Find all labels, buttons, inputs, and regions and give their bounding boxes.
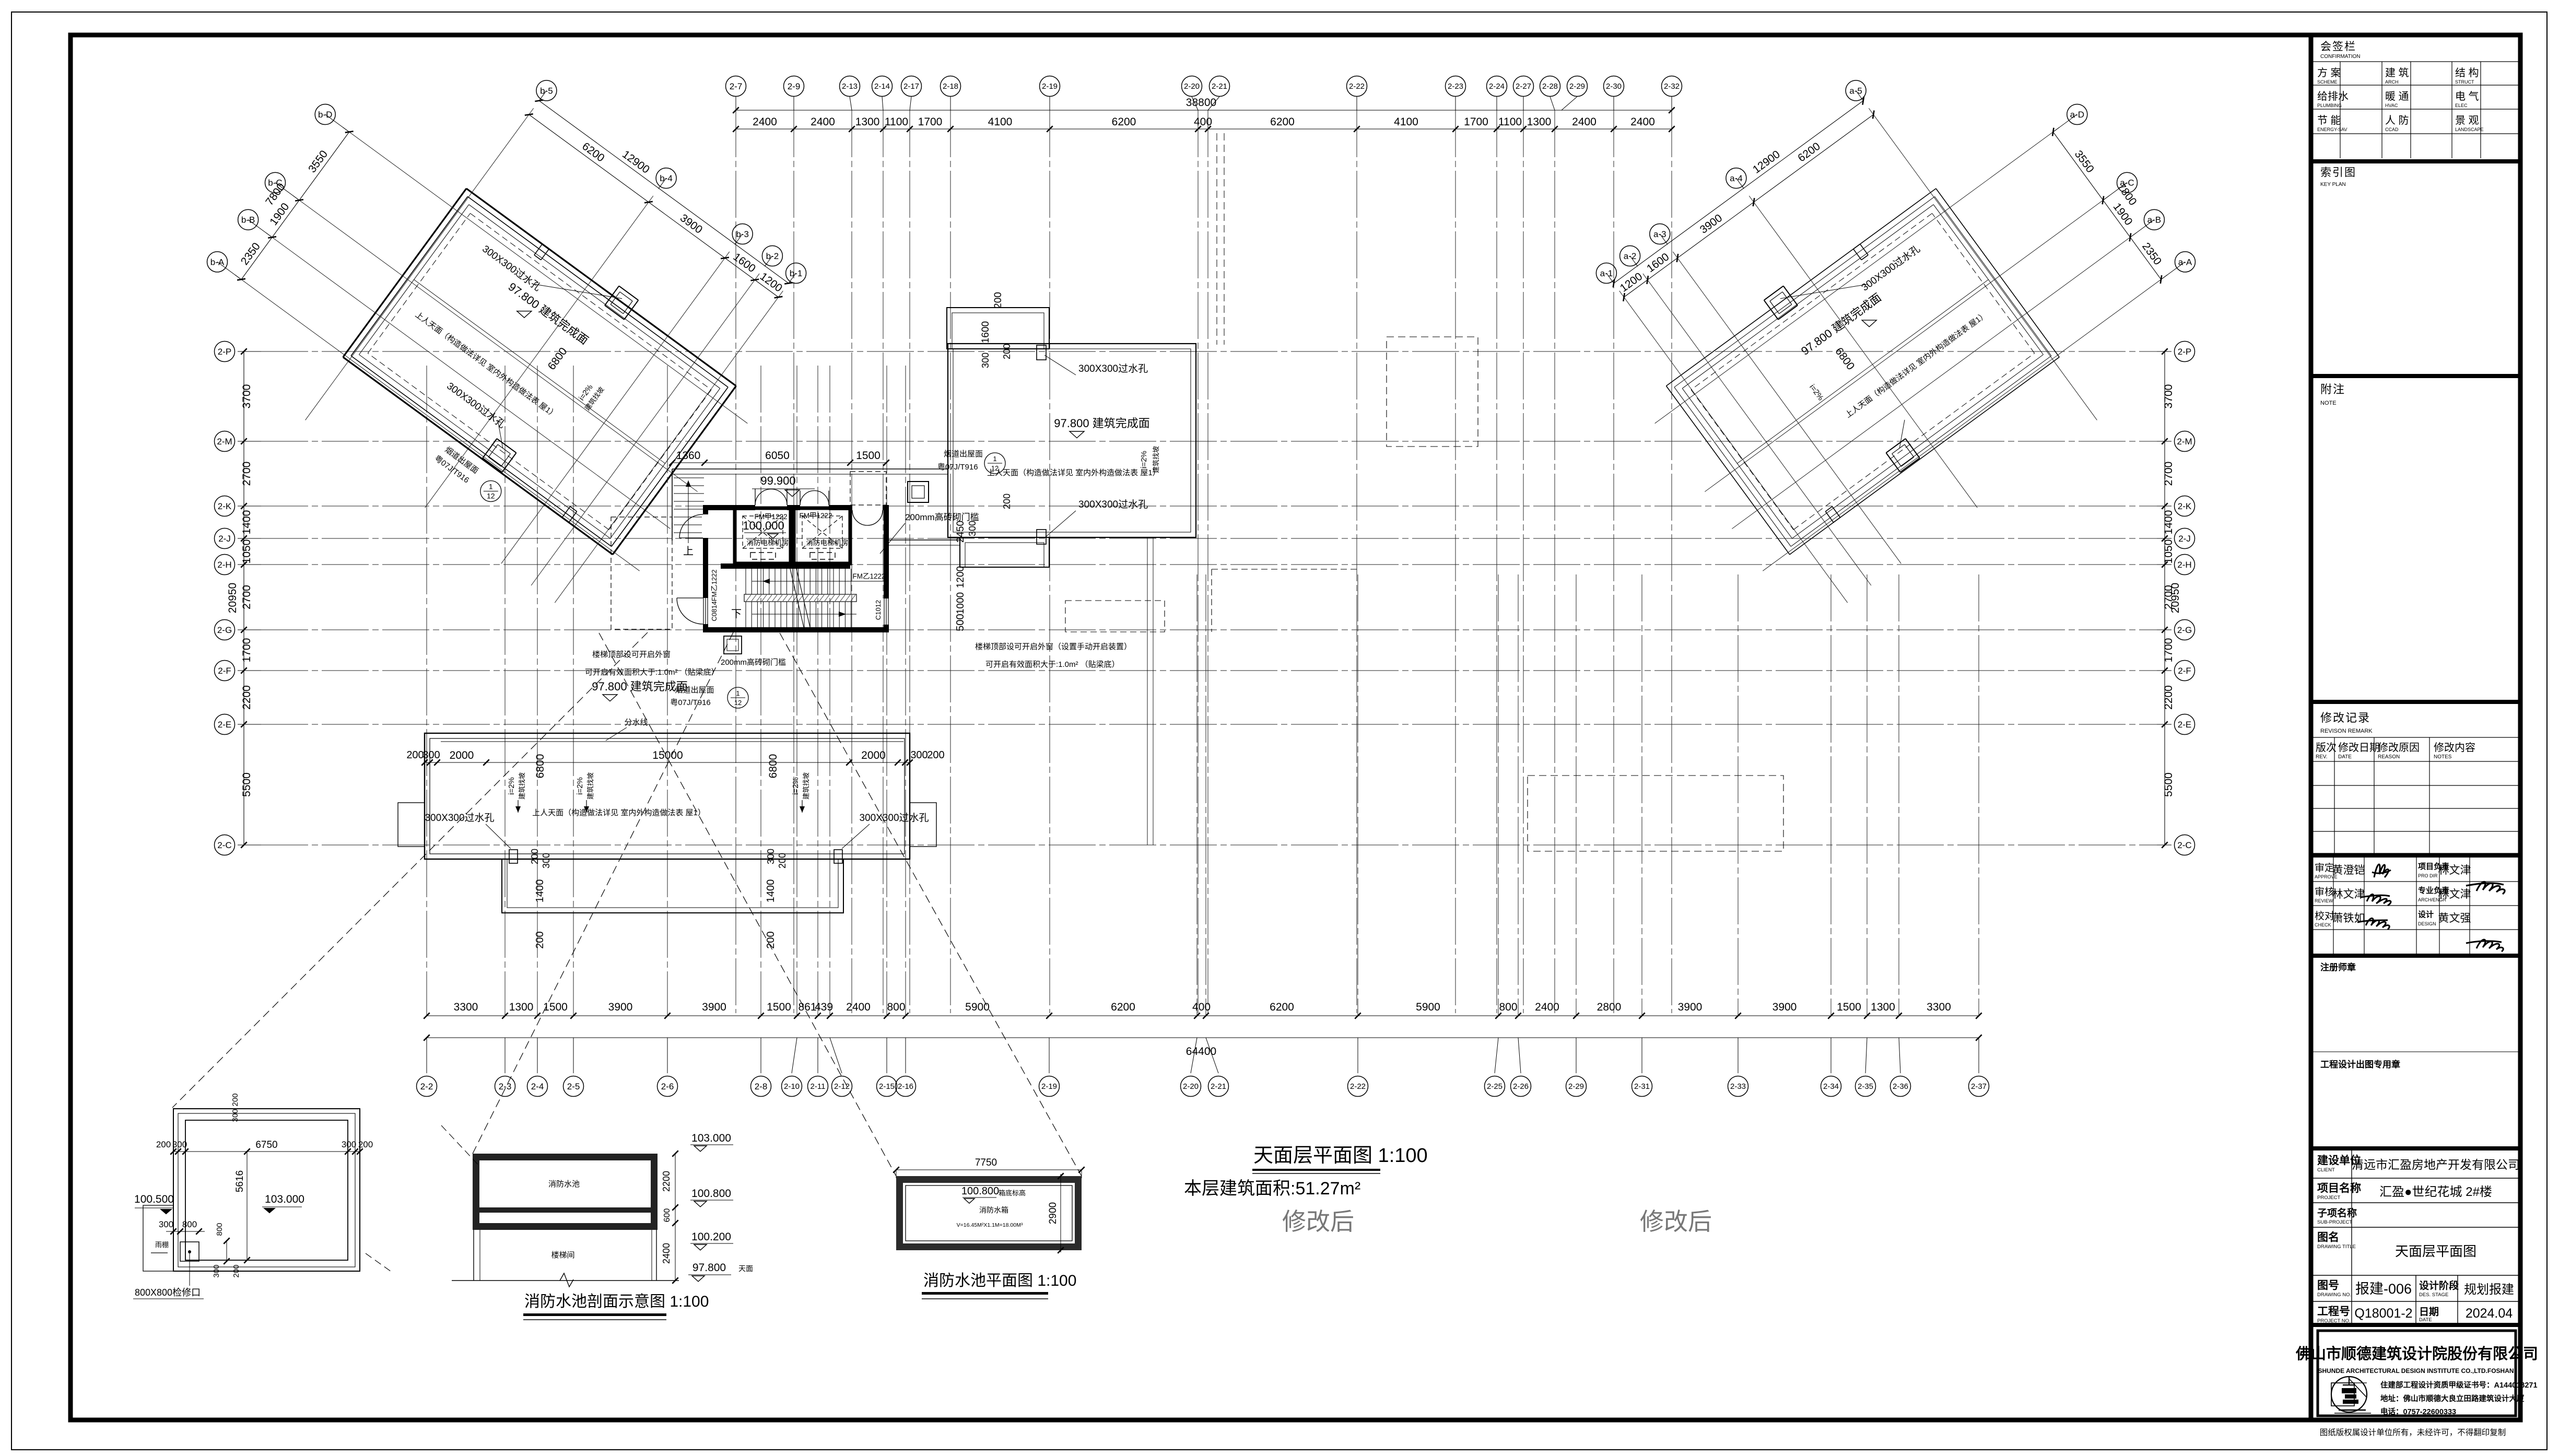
svg-text:2-M: 2-M xyxy=(2177,437,2192,447)
svg-text:2-31: 2-31 xyxy=(1634,1082,1650,1091)
svg-text:2-23: 2-23 xyxy=(1448,82,1463,91)
svg-text:2-17: 2-17 xyxy=(903,82,919,91)
svg-text:1400: 1400 xyxy=(241,510,253,535)
svg-text:索引图: 索引图 xyxy=(2320,167,2356,179)
svg-text:400: 400 xyxy=(1194,116,1212,128)
svg-text:粤07J/T916: 粤07J/T916 xyxy=(670,698,711,707)
svg-text:3700: 3700 xyxy=(2163,384,2175,409)
svg-text:103.000: 103.000 xyxy=(691,1132,731,1144)
svg-text:天面层平面图 1:100: 天面层平面图 1:100 xyxy=(1253,1145,1428,1167)
svg-text:C1012: C1012 xyxy=(874,600,882,620)
svg-text:200: 200 xyxy=(358,1140,373,1149)
svg-text:修改后: 修改后 xyxy=(1640,1208,1712,1235)
svg-text:6800: 6800 xyxy=(534,754,546,779)
svg-text:2-P: 2-P xyxy=(2178,347,2191,357)
svg-text:KEY PLAN: KEY PLAN xyxy=(2320,182,2346,187)
svg-text:2-11: 2-11 xyxy=(811,1082,826,1091)
svg-text:NOTES: NOTES xyxy=(2434,754,2452,760)
svg-text:电 气: 电 气 xyxy=(2455,90,2479,102)
svg-text:800: 800 xyxy=(1499,1001,1517,1013)
svg-text:2-4: 2-4 xyxy=(531,1082,544,1091)
svg-text:结 构: 结 构 xyxy=(2455,67,2479,79)
svg-text:CCAD: CCAD xyxy=(2385,127,2399,132)
svg-text:PROJECT: PROJECT xyxy=(2317,1195,2341,1201)
svg-text:HVAC: HVAC xyxy=(2385,103,2398,108)
svg-text:烟道出屋面: 烟道出屋面 xyxy=(675,686,714,695)
svg-text:ENERGY-SAV: ENERGY-SAV xyxy=(2317,127,2347,132)
svg-text:2200: 2200 xyxy=(241,685,253,710)
svg-text:1300: 1300 xyxy=(509,1001,534,1013)
svg-text:CLIENT: CLIENT xyxy=(2317,1167,2335,1173)
svg-text:可开启有效面积大于:1.0m² （贴梁底）: 可开启有效面积大于:1.0m² （贴梁底） xyxy=(985,660,1120,669)
svg-text:2-15: 2-15 xyxy=(879,1082,895,1091)
svg-text:SUB-PROJECT: SUB-PROJECT xyxy=(2317,1219,2352,1225)
svg-text:3900: 3900 xyxy=(608,1001,633,1013)
svg-text:地址：佛山市顺德大良立田路建筑设计大厦: 地址：佛山市顺德大良立田路建筑设计大厦 xyxy=(2380,1394,2525,1403)
svg-text:2-13: 2-13 xyxy=(842,82,858,91)
svg-text:300: 300 xyxy=(342,1140,356,1149)
svg-text:2-C: 2-C xyxy=(217,840,231,850)
svg-text:4100: 4100 xyxy=(1394,116,1418,128)
svg-text:设计: 设计 xyxy=(2418,910,2434,919)
svg-text:6200: 6200 xyxy=(1111,1001,1135,1013)
svg-text:6200: 6200 xyxy=(1270,116,1295,128)
svg-text:NOTE: NOTE xyxy=(2320,400,2337,406)
svg-text:300: 300 xyxy=(231,1109,240,1122)
svg-text:300: 300 xyxy=(172,1140,187,1149)
svg-text:2-2: 2-2 xyxy=(420,1082,433,1091)
svg-text:2-37: 2-37 xyxy=(1971,1082,1987,1091)
svg-text:300: 300 xyxy=(422,749,440,761)
svg-text:楼梯间: 楼梯间 xyxy=(551,1251,574,1260)
svg-text:2-E: 2-E xyxy=(218,720,231,730)
svg-text:DATE: DATE xyxy=(2419,1317,2432,1323)
svg-text:消防电梯机房: 消防电梯机房 xyxy=(806,539,849,547)
svg-text:2-16: 2-16 xyxy=(898,1082,913,1091)
svg-text:修改原因: 修改原因 xyxy=(2378,742,2420,754)
svg-text:方 案: 方 案 xyxy=(2317,67,2341,79)
svg-text:设计阶段: 设计阶段 xyxy=(2419,1279,2459,1291)
svg-text:2-35: 2-35 xyxy=(1858,1082,1873,1091)
svg-text:2900: 2900 xyxy=(1048,1202,1059,1224)
svg-text:2-21: 2-21 xyxy=(1211,1082,1226,1091)
svg-text:800X800检修口: 800X800检修口 xyxy=(135,1287,201,1298)
svg-text:1700: 1700 xyxy=(241,638,253,663)
svg-text:修改内容: 修改内容 xyxy=(2434,742,2475,754)
svg-text:2400: 2400 xyxy=(1572,116,1597,128)
svg-text:V=16.45M²X1.1M=18.00M³: V=16.45M²X1.1M=18.00M³ xyxy=(957,1222,1023,1228)
svg-text:林文津: 林文津 xyxy=(2438,888,2471,900)
svg-text:5900: 5900 xyxy=(1416,1001,1440,1013)
svg-text:2200: 2200 xyxy=(661,1171,672,1192)
svg-text:1300: 1300 xyxy=(1871,1001,1895,1013)
svg-text:2024.04: 2024.04 xyxy=(2466,1306,2513,1321)
svg-text:300: 300 xyxy=(541,853,551,868)
svg-text:2000: 2000 xyxy=(861,749,886,761)
svg-text:1700: 1700 xyxy=(1464,116,1488,128)
svg-text:天面: 天面 xyxy=(738,1264,753,1273)
svg-text:2-M: 2-M xyxy=(217,437,232,447)
svg-text:439: 439 xyxy=(815,1001,833,1013)
svg-text:12: 12 xyxy=(991,464,999,472)
svg-text:200mm高砖砌门槛: 200mm高砖砌门槛 xyxy=(905,512,979,522)
svg-text:5616: 5616 xyxy=(234,1170,245,1192)
svg-text:REASON: REASON xyxy=(2378,754,2400,760)
svg-text:1200: 1200 xyxy=(955,566,966,588)
svg-text:i=2%: i=2% xyxy=(791,777,800,795)
svg-text:2-H: 2-H xyxy=(2177,560,2191,570)
svg-text:2-C: 2-C xyxy=(2177,840,2191,850)
svg-text:2000: 2000 xyxy=(450,749,474,761)
svg-text:1700: 1700 xyxy=(2163,638,2175,663)
svg-text:2-K: 2-K xyxy=(218,501,232,511)
svg-text:汇盈●世纪花城 2#楼: 汇盈●世纪花城 2#楼 xyxy=(2379,1185,2492,1199)
svg-text:1700: 1700 xyxy=(918,116,943,128)
svg-text:天面层平面图: 天面层平面图 xyxy=(2395,1243,2476,1259)
svg-text:5500: 5500 xyxy=(2163,772,2175,797)
svg-text:消防水箱: 消防水箱 xyxy=(979,1206,1008,1214)
svg-text:200: 200 xyxy=(406,749,424,761)
svg-text:报建-006: 报建-006 xyxy=(2355,1281,2412,1297)
svg-text:建筑找坡: 建筑找坡 xyxy=(518,772,526,800)
svg-text:97.800 建筑完成面: 97.800 建筑完成面 xyxy=(592,680,687,693)
svg-text:粤07J/T916: 粤07J/T916 xyxy=(937,462,978,472)
svg-text:200: 200 xyxy=(765,931,777,948)
svg-text:景 观: 景 观 xyxy=(2455,115,2479,126)
svg-text:会签栏: 会签栏 xyxy=(2320,41,2356,53)
svg-text:2-7: 2-7 xyxy=(730,81,743,91)
svg-text:暖 通: 暖 通 xyxy=(2385,90,2409,102)
svg-text:2-19: 2-19 xyxy=(1041,1082,1057,1091)
svg-text:注册师章: 注册师章 xyxy=(2320,962,2356,972)
svg-text:i=2%: i=2% xyxy=(507,777,516,795)
svg-text:300: 300 xyxy=(910,749,928,761)
svg-text:DRAWING NO.: DRAWING NO. xyxy=(2317,1292,2351,1298)
svg-text:2-P: 2-P xyxy=(218,347,231,357)
svg-text:2-34: 2-34 xyxy=(1823,1082,1839,1091)
svg-text:300X300过水孔: 300X300过水孔 xyxy=(859,812,929,824)
svg-text:2-20: 2-20 xyxy=(1183,1082,1199,1091)
svg-text:佛山市顺德建筑设计院股份有限公司: 佛山市顺德建筑设计院股份有限公司 xyxy=(2295,1345,2538,1363)
svg-text:电话：0757-22600333: 电话：0757-22600333 xyxy=(2380,1407,2456,1416)
svg-text:2-H: 2-H xyxy=(217,560,231,570)
svg-text:1500: 1500 xyxy=(1837,1001,1861,1013)
svg-text:给排水: 给排水 xyxy=(2317,90,2349,102)
svg-text:6800: 6800 xyxy=(767,754,779,779)
svg-text:消防电梯机房: 消防电梯机房 xyxy=(747,539,789,547)
svg-text:103.000: 103.000 xyxy=(265,1193,304,1205)
svg-text:2-27: 2-27 xyxy=(1516,82,1531,91)
svg-text:3300: 3300 xyxy=(1927,1001,1951,1013)
svg-text:15000: 15000 xyxy=(652,749,683,761)
svg-text:2-E: 2-E xyxy=(2178,720,2191,730)
svg-text:建筑找坡: 建筑找坡 xyxy=(802,772,810,800)
svg-text:2-25: 2-25 xyxy=(1487,1082,1502,1091)
svg-text:12: 12 xyxy=(734,699,742,707)
svg-text:2-19: 2-19 xyxy=(1042,82,1058,91)
svg-text:2-21: 2-21 xyxy=(1212,82,1227,91)
svg-text:6750: 6750 xyxy=(255,1140,277,1150)
svg-text:Q18001-2: Q18001-2 xyxy=(2354,1306,2412,1321)
svg-text:2-J: 2-J xyxy=(218,534,231,544)
svg-text:20950: 20950 xyxy=(2169,583,2181,613)
svg-text:1000: 1000 xyxy=(955,592,966,614)
svg-text:300: 300 xyxy=(980,353,991,368)
svg-text:2400: 2400 xyxy=(811,116,835,128)
svg-text:LANDSCAPE: LANDSCAPE xyxy=(2455,127,2484,132)
svg-text:图纸版权属设计单位所有，未经许可，不得翻印复制: 图纸版权属设计单位所有，未经许可，不得翻印复制 xyxy=(2320,1428,2506,1437)
svg-text:2-28: 2-28 xyxy=(1542,82,1558,91)
svg-text:3900: 3900 xyxy=(1772,1001,1797,1013)
svg-text:2450: 2450 xyxy=(955,521,966,543)
svg-text:200: 200 xyxy=(1002,344,1012,359)
svg-text:2-9: 2-9 xyxy=(788,81,801,91)
svg-text:100.200: 100.200 xyxy=(691,1231,731,1243)
svg-text:CHECK: CHECK xyxy=(2315,922,2331,927)
svg-text:i=2%: i=2% xyxy=(1140,451,1148,468)
svg-text:1500: 1500 xyxy=(767,1001,791,1013)
svg-text:1050: 1050 xyxy=(2163,539,2175,564)
svg-text:子项名称: 子项名称 xyxy=(2317,1207,2357,1219)
svg-text:1: 1 xyxy=(489,483,493,491)
svg-text:2-22: 2-22 xyxy=(1350,1082,1366,1091)
svg-text:箱底标高: 箱底标高 xyxy=(999,1189,1026,1197)
svg-text:萧铁如: 萧铁如 xyxy=(2332,912,2365,924)
svg-text:97.800 建筑完成面: 97.800 建筑完成面 xyxy=(1054,417,1149,430)
svg-text:REVIEW: REVIEW xyxy=(2315,898,2333,903)
svg-text:2-29: 2-29 xyxy=(1569,82,1585,91)
svg-text:500: 500 xyxy=(955,614,966,631)
svg-text:200: 200 xyxy=(993,292,1004,309)
svg-text:100.800: 100.800 xyxy=(691,1188,731,1200)
svg-text:600: 600 xyxy=(663,1208,672,1223)
svg-text:ARCH: ARCH xyxy=(2385,79,2399,85)
svg-text:i=2%: i=2% xyxy=(576,777,584,795)
svg-text:校对: 校对 xyxy=(2315,910,2334,922)
svg-text:PRO DIR: PRO DIR xyxy=(2418,873,2438,878)
svg-text:100.500: 100.500 xyxy=(134,1193,174,1205)
svg-text:1: 1 xyxy=(736,689,739,697)
svg-text:REVISON REMARK: REVISON REMARK xyxy=(2320,728,2373,734)
svg-text:2-14: 2-14 xyxy=(874,82,890,91)
svg-text:2-F: 2-F xyxy=(2178,666,2191,676)
svg-text:1360: 1360 xyxy=(676,450,701,462)
svg-text:图号: 图号 xyxy=(2317,1279,2339,1291)
svg-text:修改记录: 修改记录 xyxy=(2320,711,2370,724)
svg-text:2-K: 2-K xyxy=(2178,501,2192,511)
svg-text:200mm高砖砌门槛: 200mm高砖砌门槛 xyxy=(721,658,786,667)
svg-text:图名: 图名 xyxy=(2317,1231,2339,1243)
svg-text:上人天面（构造做法详见 室内外构造做法表 屋1）: 上人天面（构造做法详见 室内外构造做法表 屋1） xyxy=(987,468,1160,477)
svg-text:300X300过水孔: 300X300过水孔 xyxy=(1078,363,1148,374)
svg-text:ELEC: ELEC xyxy=(2455,103,2468,108)
svg-text:FM甲1222: FM甲1222 xyxy=(799,512,832,520)
svg-text:200: 200 xyxy=(231,1093,240,1106)
svg-text:日期: 日期 xyxy=(2419,1306,2439,1318)
svg-text:上: 上 xyxy=(683,545,694,557)
svg-text:300: 300 xyxy=(212,1264,221,1277)
svg-text:2400: 2400 xyxy=(1630,116,1655,128)
svg-text:2-G: 2-G xyxy=(217,625,232,635)
svg-text:300X300过水孔: 300X300过水孔 xyxy=(1078,499,1148,510)
svg-text:建筑找坡: 建筑找坡 xyxy=(586,772,594,800)
svg-text:FM乙1222: FM乙1222 xyxy=(852,572,885,580)
svg-text:2-10: 2-10 xyxy=(784,1082,800,1091)
svg-text:2700: 2700 xyxy=(241,585,253,609)
svg-text:38800: 38800 xyxy=(1186,97,1216,109)
svg-text:5900: 5900 xyxy=(965,1001,990,1013)
svg-text:修改后: 修改后 xyxy=(1282,1208,1354,1235)
svg-text:住建部工程设计资质甲级证书号：A144018271: 住建部工程设计资质甲级证书号：A144018271 xyxy=(2380,1380,2538,1390)
svg-text:2200: 2200 xyxy=(2163,685,2175,710)
svg-text:4100: 4100 xyxy=(988,116,1013,128)
svg-text:DES. STAGE: DES. STAGE xyxy=(2419,1292,2448,1298)
svg-text:2-3: 2-3 xyxy=(499,1082,512,1091)
svg-text:2-32: 2-32 xyxy=(1664,82,1680,91)
svg-text:可开启有效面积大于:1.0m² （贴梁底）: 可开启有效面积大于:1.0m² （贴梁底） xyxy=(585,668,719,677)
svg-text:2-F: 2-F xyxy=(218,666,231,676)
svg-text:规划报建: 规划报建 xyxy=(2464,1283,2514,1297)
svg-text:300: 300 xyxy=(766,849,776,864)
svg-text:300: 300 xyxy=(967,521,978,536)
svg-text:工程号: 工程号 xyxy=(2317,1306,2350,1318)
svg-text:分水线: 分水线 xyxy=(624,718,648,727)
svg-text:300: 300 xyxy=(159,1219,173,1229)
svg-text:300X300过水孔: 300X300过水孔 xyxy=(425,812,494,824)
svg-text:1: 1 xyxy=(993,455,996,463)
svg-text:1400: 1400 xyxy=(534,879,546,903)
svg-text:800: 800 xyxy=(215,1223,224,1236)
svg-text:2800: 2800 xyxy=(1597,1001,1622,1013)
svg-text:修改日期: 修改日期 xyxy=(2338,742,2380,754)
svg-text:消防水池: 消防水池 xyxy=(548,1180,580,1189)
svg-text:100.800: 100.800 xyxy=(961,1185,999,1197)
svg-text:800: 800 xyxy=(182,1219,197,1229)
svg-text:黄文强: 黄文强 xyxy=(2438,912,2471,924)
svg-text:6200: 6200 xyxy=(1112,116,1136,128)
svg-text:本层建筑面积:51.27m²: 本层建筑面积:51.27m² xyxy=(1184,1179,1360,1199)
svg-text:2-6: 2-6 xyxy=(661,1082,674,1091)
svg-text:建筑找坡: 建筑找坡 xyxy=(1152,446,1160,473)
svg-text:人 防: 人 防 xyxy=(2385,114,2409,126)
svg-text:CONFIRMATION: CONFIRMATION xyxy=(2320,54,2360,60)
svg-text:上人天面（构造做法详见 室内外构造做法表 屋1）: 上人天面（构造做法详见 室内外构造做法表 屋1） xyxy=(532,808,706,817)
svg-text:1100: 1100 xyxy=(885,116,908,128)
svg-text:6200: 6200 xyxy=(1270,1001,1294,1013)
svg-text:1100: 1100 xyxy=(1498,116,1522,128)
svg-text:PLUMBING: PLUMBING xyxy=(2317,103,2342,108)
svg-text:200: 200 xyxy=(777,853,788,868)
svg-text:附注: 附注 xyxy=(2320,383,2345,396)
svg-text:2-30: 2-30 xyxy=(1606,82,1622,91)
svg-text:100.000: 100.000 xyxy=(743,519,784,532)
svg-text:6050: 6050 xyxy=(765,450,790,462)
svg-text:12: 12 xyxy=(487,492,495,500)
svg-text:200: 200 xyxy=(530,849,540,864)
svg-text:2-36: 2-36 xyxy=(1893,1082,1908,1091)
svg-text:1600: 1600 xyxy=(980,321,991,343)
svg-text:审核: 审核 xyxy=(2315,886,2334,898)
svg-text:2700: 2700 xyxy=(2163,462,2175,486)
svg-text:楼梯顶部设可开启外窗: 楼梯顶部设可开启外窗 xyxy=(592,650,671,659)
svg-text:林文津: 林文津 xyxy=(2332,888,2365,900)
svg-text:节 能: 节 能 xyxy=(2317,114,2341,126)
svg-text:1300: 1300 xyxy=(1527,116,1552,128)
svg-text:清远市汇盈房地产开发有限公司: 清远市汇盈房地产开发有限公司 xyxy=(2352,1158,2520,1171)
svg-text:99.900: 99.900 xyxy=(760,474,795,487)
svg-text:雨棚: 雨棚 xyxy=(155,1241,169,1249)
svg-text:64400: 64400 xyxy=(1186,1046,1216,1058)
svg-text:C0814FM乙1222: C0814FM乙1222 xyxy=(710,570,718,621)
svg-text:烟道出屋面: 烟道出屋面 xyxy=(944,450,983,459)
svg-text:3900: 3900 xyxy=(1678,1001,1703,1013)
svg-text:2-22: 2-22 xyxy=(1349,82,1365,91)
svg-text:2-24: 2-24 xyxy=(1489,82,1505,91)
svg-text:2700: 2700 xyxy=(241,462,253,486)
svg-text:2-5: 2-5 xyxy=(567,1082,580,1091)
svg-text:SHUNDE ARCHITECTURAL DESIGN IN: SHUNDE ARCHITECTURAL DESIGN INSTITUTE CO… xyxy=(2318,1367,2514,1375)
svg-text:2-18: 2-18 xyxy=(943,82,958,91)
svg-text:审定: 审定 xyxy=(2315,862,2334,874)
svg-text:DATE: DATE xyxy=(2338,754,2352,760)
svg-text:400: 400 xyxy=(1192,1001,1211,1013)
svg-text:20950: 20950 xyxy=(227,583,239,613)
svg-text:200: 200 xyxy=(156,1140,171,1149)
svg-text:DRAWING TITLE: DRAWING TITLE xyxy=(2317,1244,2356,1250)
svg-text:1400: 1400 xyxy=(765,879,777,903)
svg-text:REV.: REV. xyxy=(2316,754,2327,760)
svg-text:项目名称: 项目名称 xyxy=(2317,1182,2361,1194)
svg-text:STRUCT: STRUCT xyxy=(2455,79,2474,85)
svg-text:3300: 3300 xyxy=(454,1001,478,1013)
svg-text:200: 200 xyxy=(927,749,944,761)
svg-text:2400: 2400 xyxy=(1535,1001,1559,1013)
svg-text:3700: 3700 xyxy=(241,384,253,409)
svg-text:800: 800 xyxy=(887,1001,905,1013)
svg-text:3900: 3900 xyxy=(702,1001,726,1013)
svg-text:200: 200 xyxy=(1002,494,1012,509)
svg-text:2-8: 2-8 xyxy=(755,1082,768,1091)
svg-text:2400: 2400 xyxy=(846,1001,871,1013)
svg-text:下: 下 xyxy=(731,608,742,620)
svg-text:5500: 5500 xyxy=(241,772,253,797)
svg-text:2400: 2400 xyxy=(661,1243,672,1264)
svg-text:消防水池平面图 1:100: 消防水池平面图 1:100 xyxy=(923,1272,1076,1289)
svg-text:版次: 版次 xyxy=(2316,742,2337,754)
svg-text:DESIGN: DESIGN xyxy=(2418,921,2436,926)
svg-text:2-29: 2-29 xyxy=(1568,1082,1584,1091)
svg-text:2-G: 2-G xyxy=(2177,625,2192,635)
svg-text:林文津: 林文津 xyxy=(2438,864,2471,876)
svg-text:7750: 7750 xyxy=(975,1157,997,1168)
svg-text:1500: 1500 xyxy=(856,450,881,462)
svg-text:200: 200 xyxy=(232,1264,241,1277)
svg-text:2-33: 2-33 xyxy=(1730,1082,1746,1091)
svg-text:2-J: 2-J xyxy=(2178,534,2191,544)
svg-text:861: 861 xyxy=(798,1001,816,1013)
svg-text:2400: 2400 xyxy=(753,116,777,128)
svg-text:2-20: 2-20 xyxy=(1184,82,1200,91)
svg-text:SCHEME: SCHEME xyxy=(2317,79,2338,85)
svg-text:2-26: 2-26 xyxy=(1513,1082,1529,1091)
svg-text:楼梯顶部设可开启外窗（设置手动开启装置）: 楼梯顶部设可开启外窗（设置手动开启装置） xyxy=(975,642,1132,651)
svg-text:黄澄铠: 黄澄铠 xyxy=(2332,864,2365,876)
svg-text:1300: 1300 xyxy=(855,116,880,128)
svg-text:消防水池剖面示意图 1:100: 消防水池剖面示意图 1:100 xyxy=(524,1293,709,1310)
svg-text:97.800: 97.800 xyxy=(692,1262,726,1274)
svg-text:建 筑: 建 筑 xyxy=(2385,67,2409,79)
svg-text:1500: 1500 xyxy=(543,1001,568,1013)
